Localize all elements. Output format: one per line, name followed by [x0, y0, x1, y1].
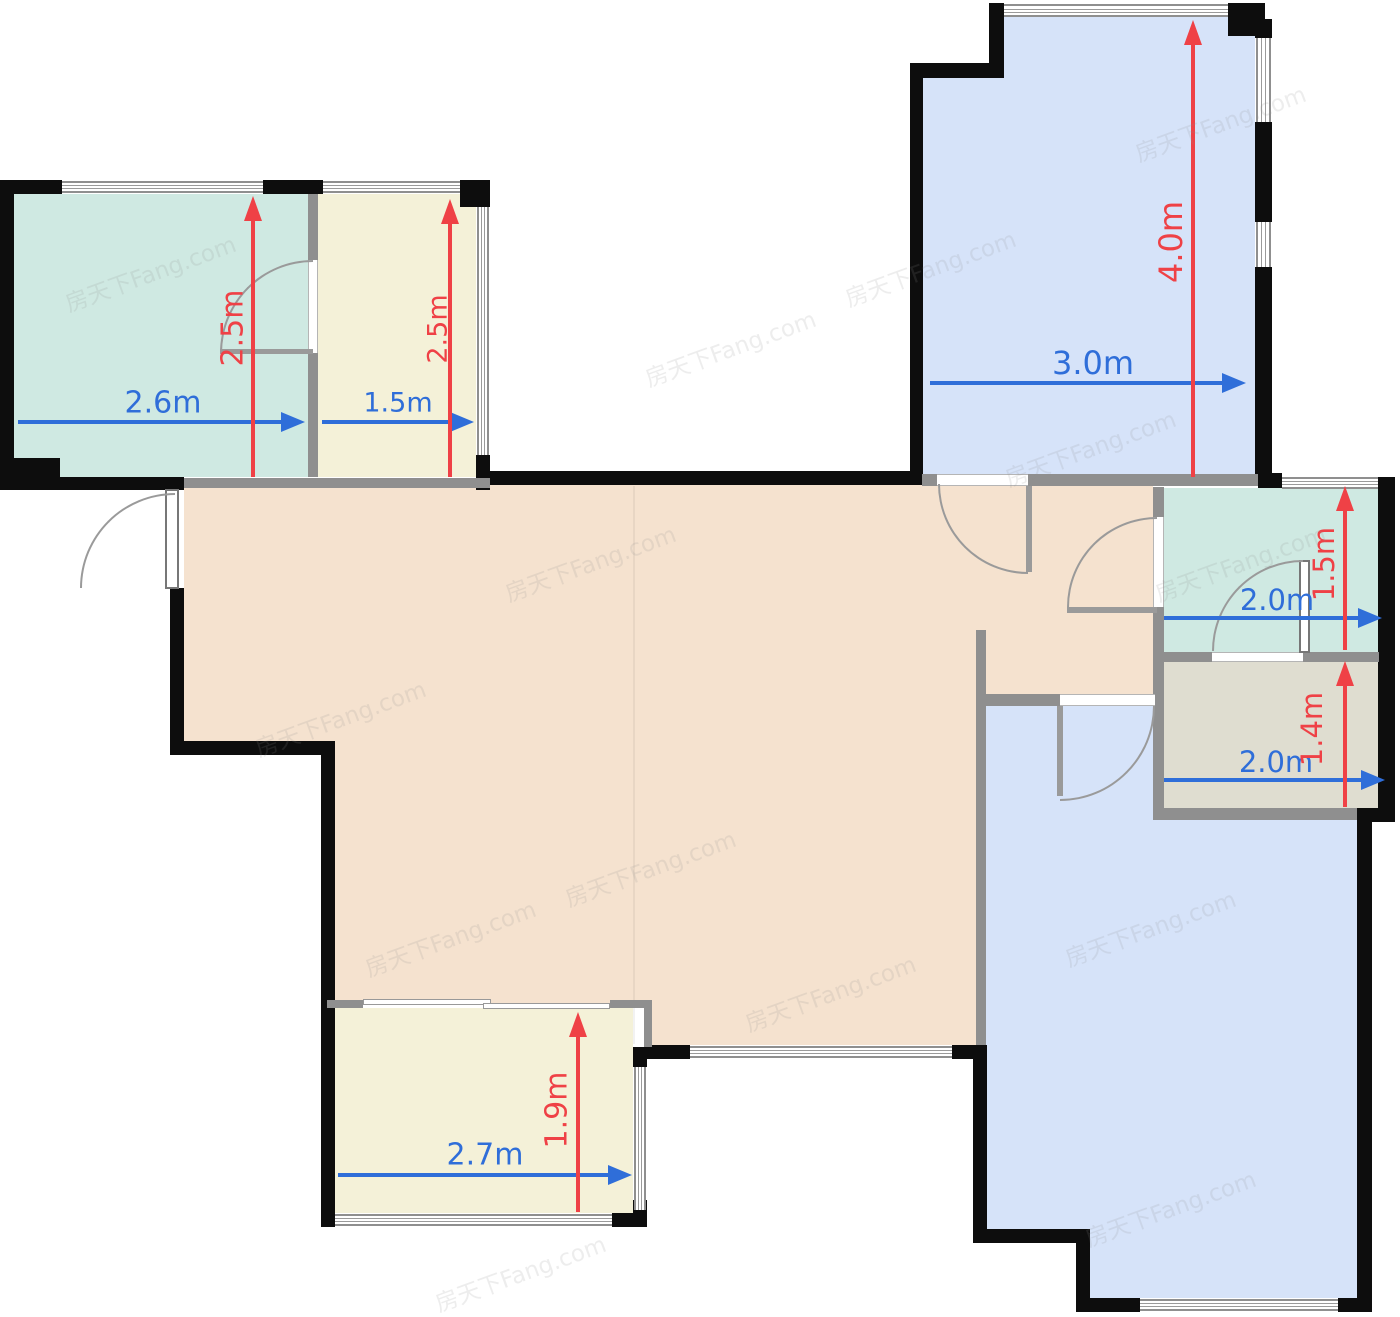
dimension-label: 1.5m: [363, 388, 432, 419]
wall: [170, 741, 335, 755]
wall: [170, 588, 184, 755]
wall: [1338, 1298, 1372, 1312]
window: [1256, 38, 1271, 122]
sliding-door-panel: [363, 999, 491, 1005]
wall: [952, 1045, 987, 1059]
dimension-label: 2.0m: [1240, 583, 1314, 617]
dimension-label: 2.5m: [423, 294, 454, 363]
arrow-icon: [441, 199, 459, 224]
wall: [490, 471, 922, 485]
wall-interior: [308, 353, 318, 477]
arrow-icon: [281, 412, 305, 432]
watermark: 房天下Fang.com: [430, 1225, 611, 1317]
room-top-right-blue: [1004, 17, 1255, 83]
area-divider-line: [633, 486, 635, 1044]
window: [1140, 1299, 1338, 1311]
door-swing-arc: [80, 493, 175, 588]
wall-interior: [1153, 487, 1164, 517]
arrow-icon: [1222, 373, 1246, 393]
wall: [1255, 19, 1272, 38]
wall: [973, 1045, 987, 1243]
window: [634, 1067, 646, 1210]
arrow-icon: [1361, 770, 1385, 790]
living-area: [645, 1003, 976, 1045]
dimension-label: 2.7m: [447, 1138, 524, 1173]
dimension-line: [1191, 42, 1195, 477]
arrow-icon: [608, 1165, 632, 1185]
door-opening: [1060, 694, 1155, 706]
watermark: 房天下Fang.com: [640, 300, 821, 393]
arrow-icon: [1336, 661, 1354, 686]
arrow-icon: [1358, 608, 1382, 628]
wall-interior: [184, 478, 490, 488]
window: [323, 181, 460, 193]
wall: [973, 1229, 1090, 1243]
wall-interior: [644, 1008, 652, 1047]
living-area: [184, 485, 976, 741]
wall-interior: [308, 194, 318, 260]
arrow-icon: [569, 1012, 587, 1037]
room-bottom-right-blue: [1090, 1229, 1357, 1298]
window: [1004, 4, 1228, 17]
dimension-line: [576, 1034, 580, 1212]
wall-interior: [1028, 474, 1258, 486]
wall: [645, 1045, 690, 1059]
wall-interior: [986, 694, 1060, 706]
sliding-door-panel: [483, 1003, 610, 1009]
window: [62, 181, 263, 193]
living-area: [986, 630, 1153, 694]
window: [1282, 477, 1378, 489]
arrow-icon: [1336, 486, 1354, 511]
wall: [0, 458, 60, 478]
wall-interior: [327, 1000, 363, 1008]
door-opening: [1212, 652, 1303, 662]
wall: [1357, 808, 1372, 1312]
dimension-line: [322, 420, 452, 424]
arrow-icon: [450, 412, 474, 432]
wall: [0, 180, 14, 490]
dimension-label: 3.0m: [1052, 344, 1134, 382]
arrow-icon: [244, 196, 262, 221]
dimension-line: [251, 218, 255, 477]
wall: [989, 3, 1004, 78]
dimension-label: 1.5m: [1307, 527, 1341, 601]
wall-interior: [922, 474, 937, 486]
wall: [0, 477, 184, 490]
window: [1256, 222, 1271, 267]
arrow-icon: [1184, 20, 1202, 45]
wall: [910, 63, 923, 485]
wall-interior: [976, 630, 986, 1045]
dimension-label: 1.4m: [1295, 692, 1329, 766]
room-bottom-right-blue: [1153, 820, 1357, 1229]
dimension-line: [1343, 508, 1347, 650]
wall: [321, 741, 335, 1227]
wall-interior: [610, 1000, 652, 1008]
room-bottom-left-cream: [335, 1008, 633, 1213]
window: [477, 207, 489, 455]
living-area: [335, 741, 976, 1003]
window: [690, 1046, 952, 1058]
wall: [263, 180, 323, 194]
wall: [460, 180, 490, 207]
wall: [633, 1047, 647, 1067]
door-leaf: [1067, 607, 1157, 613]
wall: [1258, 473, 1282, 488]
dimension-label: 4.0m: [1152, 201, 1190, 283]
dimension-label: 2.6m: [125, 386, 202, 421]
dimension-line: [18, 420, 284, 424]
dimension-line: [1343, 683, 1347, 807]
dimension-line: [338, 1173, 610, 1177]
wall: [1255, 122, 1272, 222]
dimension-label: 1.9m: [540, 1072, 575, 1149]
window: [335, 1214, 612, 1226]
wall-interior: [1164, 652, 1212, 662]
wall: [1076, 1298, 1140, 1312]
wall-interior: [1153, 808, 1357, 820]
floor-plan: 2.6m 2.5m 1.5m 2.5m 3.0m 4.0m 2.0m 1.5m …: [0, 0, 1400, 1317]
wall: [1255, 267, 1272, 480]
dimension-label: 2.5m: [216, 290, 251, 367]
room-top-right-blue: [923, 78, 1255, 474]
